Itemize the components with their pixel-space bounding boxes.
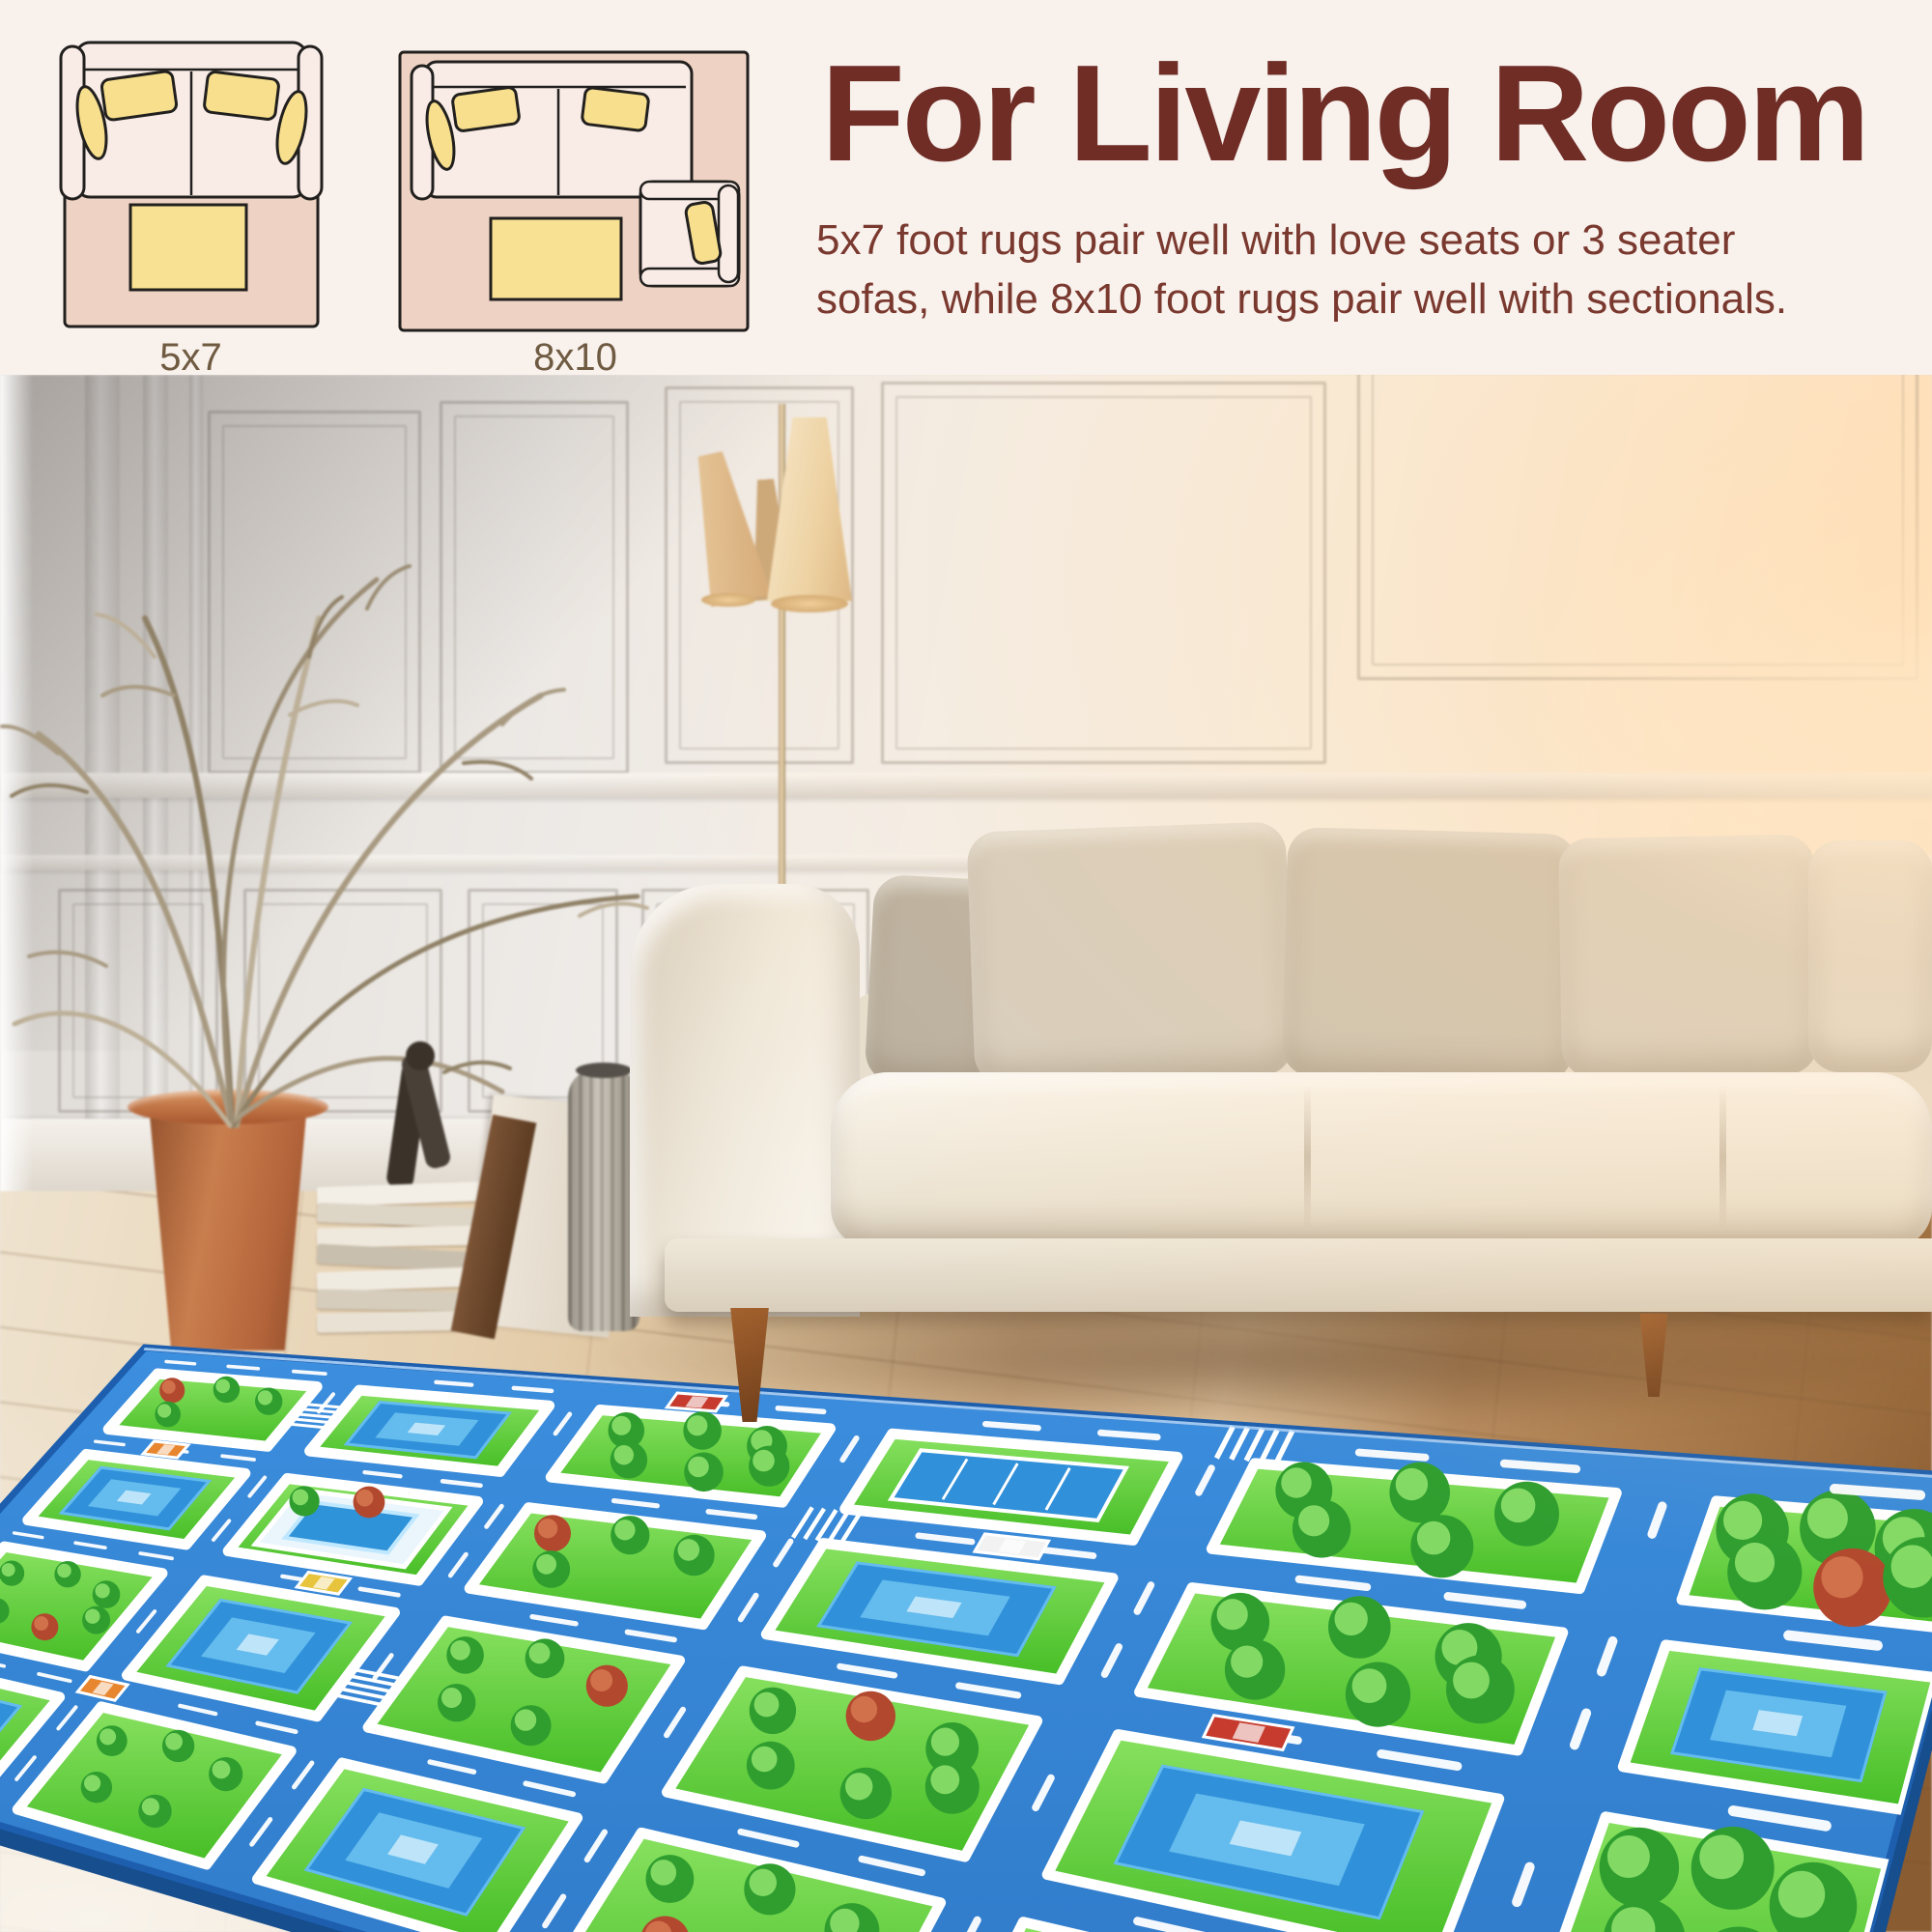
rug-size-diagram-5x7 [53, 21, 328, 340]
page-title: For Living Room [821, 35, 1922, 193]
description-line-1: 5x7 foot rugs pair well with love seats … [816, 211, 1927, 270]
seat-seam [1304, 1085, 1311, 1230]
diagram-table [130, 205, 246, 290]
description-line-2: sofas, while 8x10 foot rugs pair well wi… [816, 270, 1927, 328]
seat-seam [1719, 1085, 1726, 1230]
rug-size-label-5x7: 5x7 [53, 336, 328, 380]
sofa-seat-cushion [831, 1072, 1932, 1248]
diagram-sofa [61, 43, 322, 199]
product-image: { "header": { "title": "For Living Room"… [0, 0, 1932, 1932]
description-text: 5x7 foot rugs pair well with love seats … [816, 211, 1927, 328]
header-band: 5x7 8x10 For Living Room 5x7 foot rugs p… [0, 0, 1932, 375]
sofa-pillow [1558, 835, 1818, 1079]
sofa-base-frame [665, 1238, 1932, 1312]
sofa-pillow [967, 821, 1294, 1085]
sofa-pillow [1282, 827, 1578, 1084]
rug-size-diagram-8x10 [394, 39, 756, 338]
living-room-photo [0, 375, 1932, 1932]
diagram-sofa [412, 62, 692, 199]
rug-size-label-8x10: 8x10 [394, 336, 756, 380]
diagram-table [491, 218, 621, 299]
diagram-armchair [640, 182, 739, 286]
sofa-pillow [1808, 840, 1932, 1072]
